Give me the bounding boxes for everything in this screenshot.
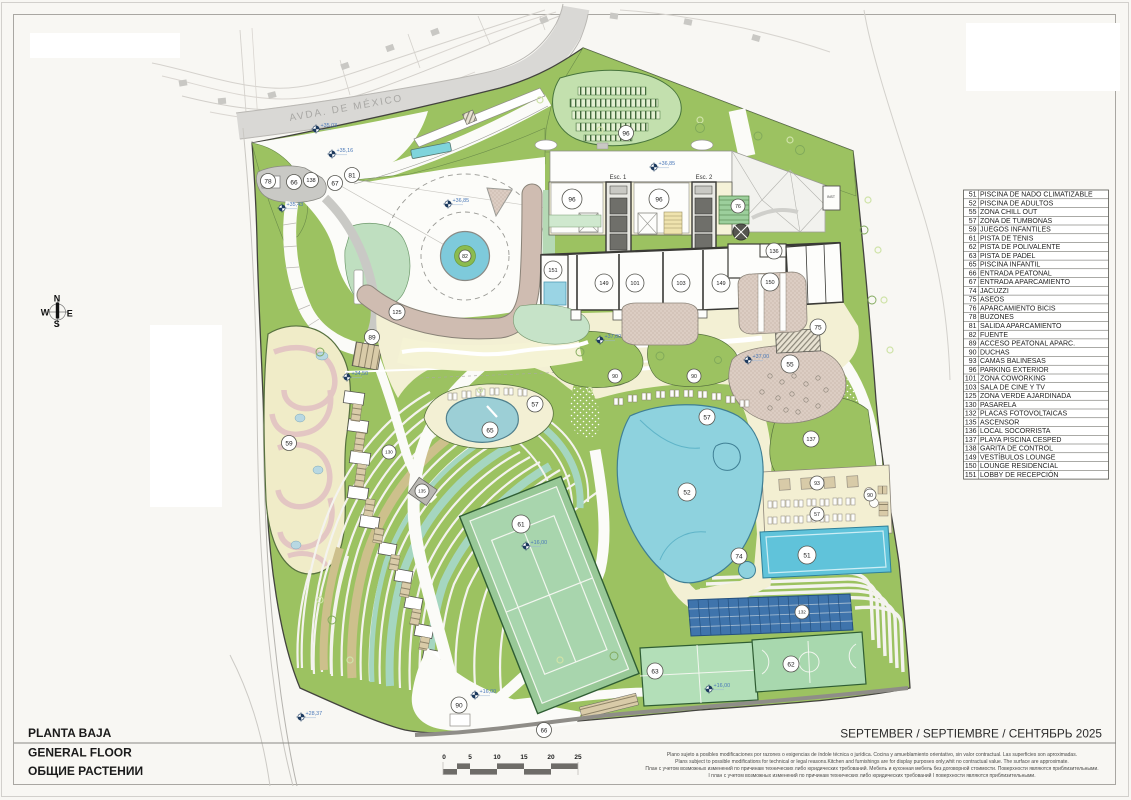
svg-text:132: 132 bbox=[965, 411, 977, 418]
svg-text:65: 65 bbox=[486, 427, 494, 434]
svg-text:5: 5 bbox=[468, 754, 472, 761]
svg-text:SALIDA APARCAMIENTO: SALIDA APARCAMIENTO bbox=[980, 323, 1062, 330]
svg-text:DUCHAS: DUCHAS bbox=[980, 349, 1010, 356]
svg-text:78: 78 bbox=[969, 314, 977, 321]
svg-text:ZONA VERDE AJARDINADA: ZONA VERDE AJARDINADA bbox=[980, 393, 1071, 400]
svg-text:149: 149 bbox=[716, 281, 725, 287]
svg-text:BUZONES: BUZONES bbox=[980, 314, 1014, 321]
svg-text:I план с учетом возможных изме: I план с учетом возможных изменений по п… bbox=[708, 772, 1035, 779]
svg-text:+16,00: +16,00 bbox=[714, 683, 731, 689]
svg-text:+36,85: +36,85 bbox=[659, 161, 676, 167]
svg-text:57: 57 bbox=[969, 218, 977, 225]
svg-text:+28,37: +28,37 bbox=[306, 711, 323, 717]
svg-text:+35,16: +35,16 bbox=[337, 148, 354, 154]
svg-text:89: 89 bbox=[368, 334, 376, 341]
svg-text:52: 52 bbox=[683, 489, 691, 496]
svg-text:ASCENSOR: ASCENSOR bbox=[980, 419, 1019, 426]
svg-text:GARITA DE CONTROL: GARITA DE CONTROL bbox=[980, 446, 1053, 453]
svg-text:90: 90 bbox=[867, 493, 873, 499]
svg-text:57: 57 bbox=[814, 512, 820, 518]
svg-text:66: 66 bbox=[290, 179, 298, 186]
svg-text:149: 149 bbox=[599, 281, 608, 287]
svg-text:+35,03: +35,03 bbox=[321, 123, 338, 129]
svg-text:75: 75 bbox=[814, 324, 822, 331]
svg-text:101: 101 bbox=[965, 376, 977, 383]
svg-text:15: 15 bbox=[520, 754, 528, 761]
svg-text:132: 132 bbox=[798, 610, 806, 615]
svg-text:135: 135 bbox=[965, 419, 977, 426]
svg-text:93: 93 bbox=[969, 358, 977, 365]
svg-text:90: 90 bbox=[691, 374, 697, 380]
svg-text:ENTRADA APARCAMIENTO: ENTRADA APARCAMIENTO bbox=[980, 279, 1071, 286]
svg-text:78: 78 bbox=[264, 178, 272, 185]
svg-text:SEPTEMBER / SEPTIEMBRE / СЕНТЯ: SEPTEMBER / SEPTIEMBRE / СЕНТЯБРЬ 2025 bbox=[840, 727, 1102, 741]
svg-text:90: 90 bbox=[455, 702, 463, 709]
svg-text:PISTA DE PADEL: PISTA DE PADEL bbox=[980, 253, 1035, 260]
svg-text:S: S bbox=[54, 319, 60, 329]
svg-text:57: 57 bbox=[531, 401, 539, 408]
svg-text:130: 130 bbox=[965, 402, 977, 409]
svg-text:+16,00: +16,00 bbox=[480, 689, 497, 695]
svg-text:LOUNGE RESIDENCIAL: LOUNGE RESIDENCIAL bbox=[980, 463, 1058, 470]
svg-text:ZONA DE TUMBONAS: ZONA DE TUMBONAS bbox=[980, 218, 1053, 225]
svg-text:20: 20 bbox=[547, 754, 555, 761]
svg-text:151: 151 bbox=[965, 472, 977, 479]
svg-text:137: 137 bbox=[806, 437, 815, 443]
svg-text:ASEOS: ASEOS bbox=[980, 297, 1004, 304]
svg-text:GENERAL FLOOR: GENERAL FLOOR bbox=[28, 746, 132, 760]
svg-text:59: 59 bbox=[969, 227, 977, 234]
svg-text:66: 66 bbox=[969, 270, 977, 277]
svg-text:74: 74 bbox=[735, 553, 743, 560]
svg-text:INST: INST bbox=[827, 195, 836, 199]
svg-text:125: 125 bbox=[392, 310, 401, 316]
svg-text:51: 51 bbox=[803, 552, 811, 559]
svg-text:75: 75 bbox=[969, 297, 977, 304]
svg-text:+34,50: +34,50 bbox=[352, 371, 369, 377]
svg-text:136: 136 bbox=[769, 249, 778, 255]
svg-text:ACCESO PEATONAL APARC.: ACCESO PEATONAL APARC. bbox=[980, 341, 1075, 348]
svg-text:Plano sujeto a posibles modifi: Plano sujeto a posibles modificaciones p… bbox=[667, 752, 1077, 758]
svg-text:PISCINA DE NADO CLIMATIZABLE: PISCINA DE NADO CLIMATIZABLE bbox=[980, 192, 1093, 199]
svg-text:138: 138 bbox=[965, 446, 977, 453]
svg-text:125: 125 bbox=[965, 393, 977, 400]
svg-text:PISTA DE POLIVALENTE: PISTA DE POLIVALENTE bbox=[980, 244, 1061, 251]
svg-text:135: 135 bbox=[418, 489, 426, 494]
svg-text:138: 138 bbox=[306, 178, 315, 184]
svg-text:PISTA DE TENIS: PISTA DE TENIS bbox=[980, 235, 1034, 242]
svg-text:APARCAMIENTO BICIS: APARCAMIENTO BICIS bbox=[980, 306, 1056, 313]
svg-text:76: 76 bbox=[969, 306, 977, 313]
svg-text:61: 61 bbox=[517, 521, 525, 528]
svg-text:151: 151 bbox=[548, 268, 557, 274]
svg-text:VESTÍBULOS LOUNGE: VESTÍBULOS LOUNGE bbox=[980, 452, 1056, 461]
svg-text:PARKING EXTERIOR: PARKING EXTERIOR bbox=[980, 367, 1049, 374]
svg-text:62: 62 bbox=[969, 244, 977, 251]
svg-text:ОБЩИЕ РАСТЕНИИ: ОБЩИЕ РАСТЕНИИ bbox=[28, 764, 143, 778]
svg-text:FUENTE: FUENTE bbox=[980, 332, 1008, 339]
svg-text:89: 89 bbox=[969, 341, 977, 348]
svg-text:96: 96 bbox=[622, 130, 630, 137]
svg-text:59: 59 bbox=[285, 440, 293, 447]
svg-text:150: 150 bbox=[765, 280, 774, 286]
svg-text:67: 67 bbox=[331, 180, 339, 187]
svg-text:+37,00: +37,00 bbox=[605, 334, 622, 340]
svg-text:SALA DE CINE Y TV: SALA DE CINE Y TV bbox=[980, 384, 1045, 391]
svg-text:55: 55 bbox=[786, 361, 794, 368]
svg-text:N: N bbox=[54, 294, 61, 304]
svg-text:JACUZZI: JACUZZI bbox=[980, 288, 1009, 295]
svg-text:ZONA COWORKING: ZONA COWORKING bbox=[980, 376, 1046, 383]
svg-text:E: E bbox=[67, 308, 73, 318]
svg-text:+37,00: +37,00 bbox=[753, 354, 770, 360]
svg-text:137: 137 bbox=[965, 437, 977, 444]
svg-text:ENTRADA PEATONAL: ENTRADA PEATONAL bbox=[980, 270, 1052, 277]
svg-text:67: 67 bbox=[969, 279, 977, 286]
svg-text:74: 74 bbox=[969, 288, 977, 295]
svg-text:76: 76 bbox=[735, 204, 741, 210]
svg-text:63: 63 bbox=[651, 668, 659, 675]
svg-text:57: 57 bbox=[703, 414, 711, 421]
svg-text:62: 62 bbox=[787, 661, 795, 668]
svg-text:+36,85: +36,85 bbox=[453, 198, 470, 204]
svg-text:90: 90 bbox=[969, 349, 977, 356]
svg-text:103: 103 bbox=[676, 281, 685, 287]
svg-text:61: 61 bbox=[969, 235, 977, 242]
svg-text:66: 66 bbox=[541, 728, 548, 734]
svg-text:PLAYA PISCINA CESPED: PLAYA PISCINA CESPED bbox=[980, 437, 1061, 444]
svg-text:CAMAS BALINESAS: CAMAS BALINESAS bbox=[980, 358, 1046, 365]
svg-text:52: 52 bbox=[969, 200, 977, 207]
svg-text:130: 130 bbox=[385, 450, 393, 455]
svg-text:10: 10 bbox=[493, 754, 501, 761]
svg-text:PLACAS FOTOVOLTAICAS: PLACAS FOTOVOLTAICAS bbox=[980, 411, 1067, 418]
svg-text:ZONA CHILL OUT: ZONA CHILL OUT bbox=[980, 209, 1038, 216]
svg-text:149: 149 bbox=[965, 454, 977, 461]
svg-text:96: 96 bbox=[568, 196, 576, 203]
svg-text:+35,43: +35,43 bbox=[287, 202, 304, 208]
svg-text:PLANTA BAJA: PLANTA BAJA bbox=[28, 726, 112, 740]
svg-text:96: 96 bbox=[655, 196, 663, 203]
svg-text:PISCINA INFANTIL: PISCINA INFANTIL bbox=[980, 262, 1040, 269]
svg-text:65: 65 bbox=[969, 262, 977, 269]
svg-text:55: 55 bbox=[969, 209, 977, 216]
svg-text:Plans subject to possible modi: Plans subject to possible modifications … bbox=[675, 759, 1069, 765]
svg-text:101: 101 bbox=[630, 281, 639, 287]
svg-text:JUEGOS INFANTILES: JUEGOS INFANTILES bbox=[980, 227, 1051, 234]
svg-text:82: 82 bbox=[462, 254, 468, 260]
svg-text:103: 103 bbox=[965, 384, 977, 391]
svg-text:LOCAL SOCORRISTA: LOCAL SOCORRISTA bbox=[980, 428, 1051, 435]
svg-text:W: W bbox=[41, 307, 50, 317]
svg-text:План с учетом возможных измене: План с учетом возможных изменений по при… bbox=[645, 765, 1098, 772]
svg-text:81: 81 bbox=[348, 172, 356, 179]
svg-text:96: 96 bbox=[969, 367, 977, 374]
svg-text:0: 0 bbox=[442, 754, 446, 761]
svg-text:136: 136 bbox=[965, 428, 977, 435]
svg-text:LOBBY DE RECEPCIÓN: LOBBY DE RECEPCIÓN bbox=[980, 470, 1058, 479]
svg-text:+16,00: +16,00 bbox=[531, 540, 548, 546]
svg-text:25: 25 bbox=[574, 754, 582, 761]
svg-text:Esc. 2: Esc. 2 bbox=[696, 175, 713, 181]
svg-text:63: 63 bbox=[969, 253, 977, 260]
svg-text:90: 90 bbox=[612, 374, 618, 380]
svg-text:PISCINA DE ADULTOS: PISCINA DE ADULTOS bbox=[980, 200, 1054, 207]
svg-text:PASARELA: PASARELA bbox=[980, 402, 1017, 409]
svg-text:82: 82 bbox=[969, 332, 977, 339]
svg-text:93: 93 bbox=[814, 481, 820, 487]
svg-text:81: 81 bbox=[969, 323, 977, 330]
svg-text:150: 150 bbox=[965, 463, 977, 470]
svg-text:Esc. 1: Esc. 1 bbox=[610, 175, 627, 181]
svg-text:51: 51 bbox=[969, 192, 977, 199]
